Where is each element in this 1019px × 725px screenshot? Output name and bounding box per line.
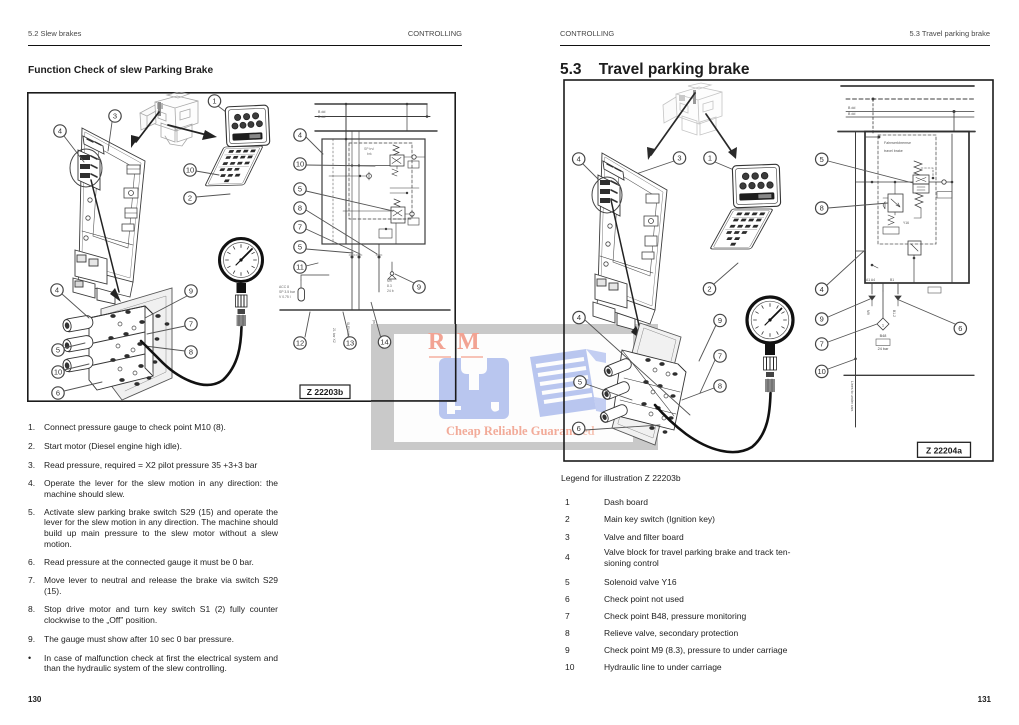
svg-text:10: 10 (818, 367, 826, 376)
svg-text:5: 5 (298, 243, 302, 252)
svg-text:8: 8 (189, 348, 193, 357)
svg-text:6: 6 (56, 389, 60, 398)
svg-text:4: 4 (577, 313, 581, 322)
svg-text:11: 11 (296, 263, 304, 272)
svg-text:7: 7 (298, 223, 302, 232)
svg-text:Z 22204a: Z 22204a (926, 445, 962, 455)
svg-text:5: 5 (820, 155, 824, 164)
svg-text:13: 13 (346, 339, 354, 348)
svg-text:3: 3 (677, 154, 681, 163)
svg-text:9: 9 (189, 287, 193, 296)
svg-text:1: 1 (882, 323, 885, 328)
svg-text:9: 9 (820, 315, 824, 324)
svg-text:B1: B1 (890, 278, 894, 282)
svg-text:B dd: B dd (848, 106, 855, 110)
svg-text:brk: brk (367, 152, 372, 156)
svg-text:V 0.75 l: V 0.75 l (279, 295, 291, 299)
svg-text:M9: M9 (387, 279, 392, 283)
svg-text:5: 5 (578, 378, 582, 387)
svg-text:1: 1 (212, 97, 216, 106)
svg-text:ACC 8: ACC 8 (279, 285, 289, 289)
svg-text:10: 10 (296, 160, 304, 169)
svg-text:B dd: B dd (848, 112, 855, 116)
svg-text:7: 7 (820, 340, 824, 349)
svg-text:SP 3.5 bar: SP 3.5 bar (279, 290, 296, 294)
svg-text:M9: M9 (866, 310, 870, 315)
svg-text:2: 2 (188, 194, 192, 203)
svg-text:5: 5 (298, 185, 302, 194)
svg-text:7: 7 (718, 352, 722, 361)
svg-text:8: 8 (718, 382, 722, 391)
svg-text:21 bar X2: 21 bar X2 (332, 328, 336, 343)
svg-text:6: 6 (958, 324, 962, 333)
svg-text:2: 2 (707, 284, 711, 293)
svg-text:4: 4 (58, 127, 62, 136)
svg-text:SP trvl: SP trvl (364, 147, 374, 151)
svg-text:4: 4 (55, 286, 59, 295)
svg-text:B48: B48 (880, 334, 887, 338)
svg-text:B dd: B dd (318, 110, 325, 114)
svg-text:Y16: Y16 (903, 221, 909, 225)
svg-text:B1.2: B1.2 (892, 310, 896, 317)
svg-text:1: 1 (708, 154, 712, 163)
svg-text:10: 10 (54, 368, 62, 377)
svg-text:6: 6 (577, 424, 581, 433)
svg-text:9: 9 (718, 316, 722, 325)
svg-text:Z 22203b: Z 22203b (307, 387, 343, 397)
svg-text:10: 10 (186, 166, 194, 175)
svg-text:7: 7 (189, 320, 193, 329)
svg-text:8.3: 8.3 (387, 284, 392, 288)
svg-text:travel brake: travel brake (884, 149, 903, 153)
svg-text:4: 4 (298, 131, 302, 140)
svg-text:12: 12 (296, 339, 304, 348)
svg-text:4: 4 (820, 285, 824, 294)
svg-text:3: 3 (113, 112, 117, 121)
svg-text:8: 8 (298, 204, 302, 213)
svg-text:Lines to under carr.: Lines to under carr. (850, 381, 854, 412)
svg-text:8: 8 (820, 204, 824, 213)
svg-text:14: 14 (380, 338, 388, 347)
svg-text:Fahrwerkbremse: Fahrwerkbremse (884, 141, 911, 145)
svg-text:4: 4 (577, 155, 581, 164)
svg-text:B dd: B dd (318, 115, 325, 119)
svg-text:5: 5 (56, 346, 60, 355)
svg-text:A1 A4: A1 A4 (866, 278, 875, 282)
svg-text:24 bar: 24 bar (878, 347, 890, 351)
